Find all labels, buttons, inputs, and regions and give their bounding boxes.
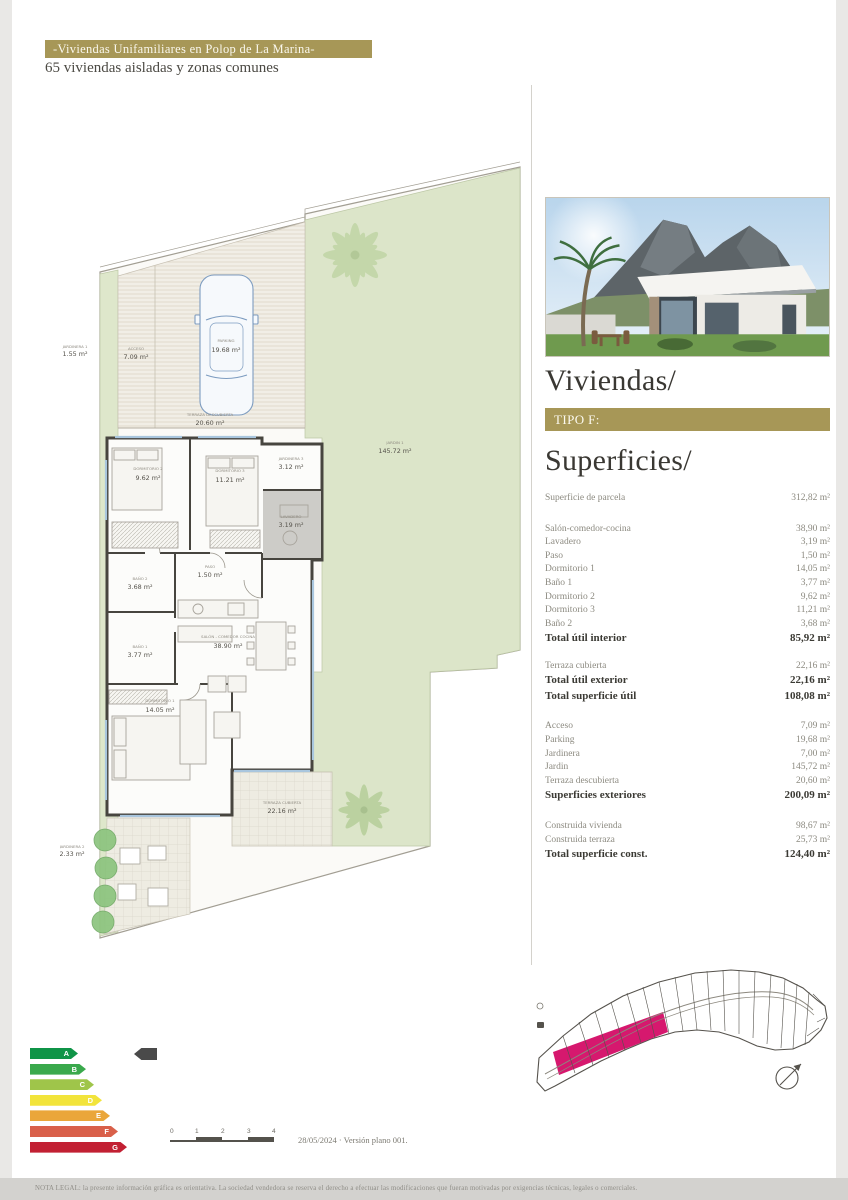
svg-text:SALÓN - COMEDOR COCINA: SALÓN - COMEDOR COCINA [201, 634, 255, 639]
svg-text:JARDINERA 1: JARDINERA 1 [62, 344, 88, 349]
interior-table: Salón-comedor-cocina38,90 m² Lavadero3,1… [545, 523, 830, 647]
svg-text:3.68 m²: 3.68 m² [127, 583, 152, 591]
site-band [537, 970, 827, 1091]
svg-text:11.21 m²: 11.21 m² [215, 476, 245, 484]
floor-plan: JARDINERA 11.55 m² ACCESO7.09 m² PARKING… [60, 160, 530, 960]
project-subtitle: 65 viviendas aisladas y zonas comunes [45, 60, 279, 77]
table-row: Baño 23,68 m² [545, 618, 830, 632]
plan-version: 28/05/2024 · Versión plano 001. [298, 1135, 408, 1145]
outdoor-table: Acceso7,09 m² Parking19,68 m² Jardinera7… [545, 720, 830, 803]
total-row: Total superficie const.124,40 m² [545, 847, 830, 863]
svg-text:145.72 m²: 145.72 m² [378, 447, 412, 455]
svg-text:TERRAZA CUBIERTA: TERRAZA CUBIERTA [262, 800, 302, 805]
svg-text:20.60 m²: 20.60 m² [195, 419, 225, 427]
svg-text:38.90 m²: 38.90 m² [213, 642, 243, 650]
total-row: Total útil interior85,92 m² [545, 631, 830, 647]
table-row: Jardinera7,00 m² [545, 748, 830, 762]
svg-text:19.68 m²: 19.68 m² [211, 346, 241, 354]
svg-text:BAÑO 2: BAÑO 2 [132, 576, 148, 581]
svg-text:LAVADERO: LAVADERO [281, 514, 302, 519]
rating-letter: F [104, 1127, 109, 1136]
svg-text:3.19 m²: 3.19 m² [278, 521, 303, 529]
energy-row: A [30, 1048, 170, 1059]
total-row: Total superficie útil108,08 m² [545, 689, 830, 705]
svg-text:3.77 m²: 3.77 m² [127, 651, 152, 659]
table-row: Dormitorio 29,62 m² [545, 591, 830, 605]
built-table: Construida vivienda98,67 m² Construida t… [545, 820, 830, 863]
parcela-row: Superficie de parcela312,82 m² [545, 492, 830, 506]
svg-text:JARDINERA 2: JARDINERA 2 [60, 844, 85, 849]
viviendas-title: Viviendas/ [545, 364, 830, 398]
vertical-divider [531, 85, 532, 965]
energy-row: E [30, 1110, 170, 1121]
north-arrow-icon [776, 1064, 801, 1089]
energy-pointer-icon [134, 1048, 157, 1060]
villa-photo [545, 197, 830, 357]
brochure-page: -Viviendas Unifamiliares en Polop de La … [0, 0, 848, 1200]
legal-footer: NOTA LEGAL: la presente información gráf… [0, 1178, 848, 1200]
legal-text: NOTA LEGAL: la presente información gráf… [0, 1178, 848, 1192]
table-row: Terraza cubierta22,16 m² [545, 660, 830, 674]
svg-text:7.09 m²: 7.09 m² [123, 353, 148, 361]
rating-letter: A [64, 1049, 69, 1058]
table-row: Salón-comedor-cocina38,90 m² [545, 523, 830, 537]
rating-letter: D [88, 1096, 93, 1105]
table-row: Jardin145,72 m² [545, 761, 830, 775]
svg-text:9.62 m²: 9.62 m² [135, 474, 160, 482]
table-row: Parking19,68 m² [545, 734, 830, 748]
svg-text:JARDIN 1: JARDIN 1 [385, 440, 404, 445]
svg-text:14.05 m²: 14.05 m² [145, 706, 175, 714]
left-margin [0, 0, 12, 1200]
scale-bar: 0 1 2 3 4 [170, 1128, 276, 1146]
right-margin [836, 0, 848, 1200]
table-row: Lavadero3,19 m² [545, 536, 830, 550]
energy-row: D [30, 1095, 170, 1106]
total-row: Superficies exteriores200,09 m² [545, 788, 830, 804]
energy-row: F [30, 1126, 170, 1137]
palm-tree [323, 223, 387, 287]
svg-text:1.50 m²: 1.50 m² [197, 571, 222, 579]
legend-dot-icon [537, 1003, 543, 1009]
info-panel: Viviendas/ TIPO F: Superficies/ Superfic… [545, 364, 830, 863]
energy-row: G [30, 1142, 170, 1153]
svg-text:1.55 m²: 1.55 m² [62, 350, 87, 358]
svg-text:JARDINERA 3: JARDINERA 3 [278, 456, 304, 461]
svg-text:PARKING: PARKING [217, 338, 234, 343]
project-title-bar: -Viviendas Unifamiliares en Polop de La … [45, 40, 372, 58]
svg-text:PASO: PASO [205, 564, 215, 569]
energy-row: C [30, 1079, 170, 1090]
energy-row: B [30, 1064, 170, 1075]
scale-segment [196, 1137, 222, 1140]
svg-text:2.33 m²: 2.33 m² [60, 850, 85, 858]
table-row: Dormitorio 311,21 m² [545, 604, 830, 618]
legend-square-icon [537, 1022, 544, 1028]
scale-segment [248, 1137, 274, 1140]
svg-text:3.12 m²: 3.12 m² [278, 463, 303, 471]
table-row: Construida terraza25,73 m² [545, 834, 830, 848]
table-row: Acceso7,09 m² [545, 720, 830, 734]
rating-letter: G [112, 1143, 118, 1152]
energy-rating-chart: A B C D E F G [30, 1048, 170, 1157]
car-icon [195, 275, 258, 415]
svg-text:DORMITORIO 1: DORMITORIO 1 [145, 698, 175, 703]
rating-letter: B [72, 1065, 77, 1074]
rating-letter: C [80, 1080, 85, 1089]
svg-text:BAÑO 1: BAÑO 1 [132, 644, 148, 649]
table-row: Baño 13,77 m² [545, 577, 830, 591]
patio-area [104, 818, 190, 934]
table-row: Construida vivienda98,67 m² [545, 820, 830, 834]
table-row: Terraza descubierta20,60 m² [545, 775, 830, 789]
superficies-title: Superficies/ [545, 444, 830, 478]
scale-numbers: 0 1 2 3 4 [170, 1128, 276, 1136]
svg-text:DORMITORIO 3: DORMITORIO 3 [215, 468, 245, 473]
svg-text:DORMITORIO 2: DORMITORIO 2 [133, 466, 163, 471]
rating-letter: E [96, 1111, 101, 1120]
site-plan [535, 962, 835, 1107]
palm-tree [338, 784, 389, 835]
total-row: Total útil exterior22,16 m² [545, 673, 830, 689]
tipo-bar: TIPO F: [545, 408, 830, 431]
table-row: Paso1,50 m² [545, 550, 830, 564]
svg-text:ACCESO: ACCESO [128, 346, 144, 351]
svg-text:TERRAZA DESCUBIERTA: TERRAZA DESCUBIERTA [186, 412, 234, 417]
svg-text:22.16 m²: 22.16 m² [267, 807, 297, 815]
table-row: Dormitorio 114,05 m² [545, 563, 830, 577]
exterior-table: Terraza cubierta22,16 m² Total útil exte… [545, 660, 830, 705]
